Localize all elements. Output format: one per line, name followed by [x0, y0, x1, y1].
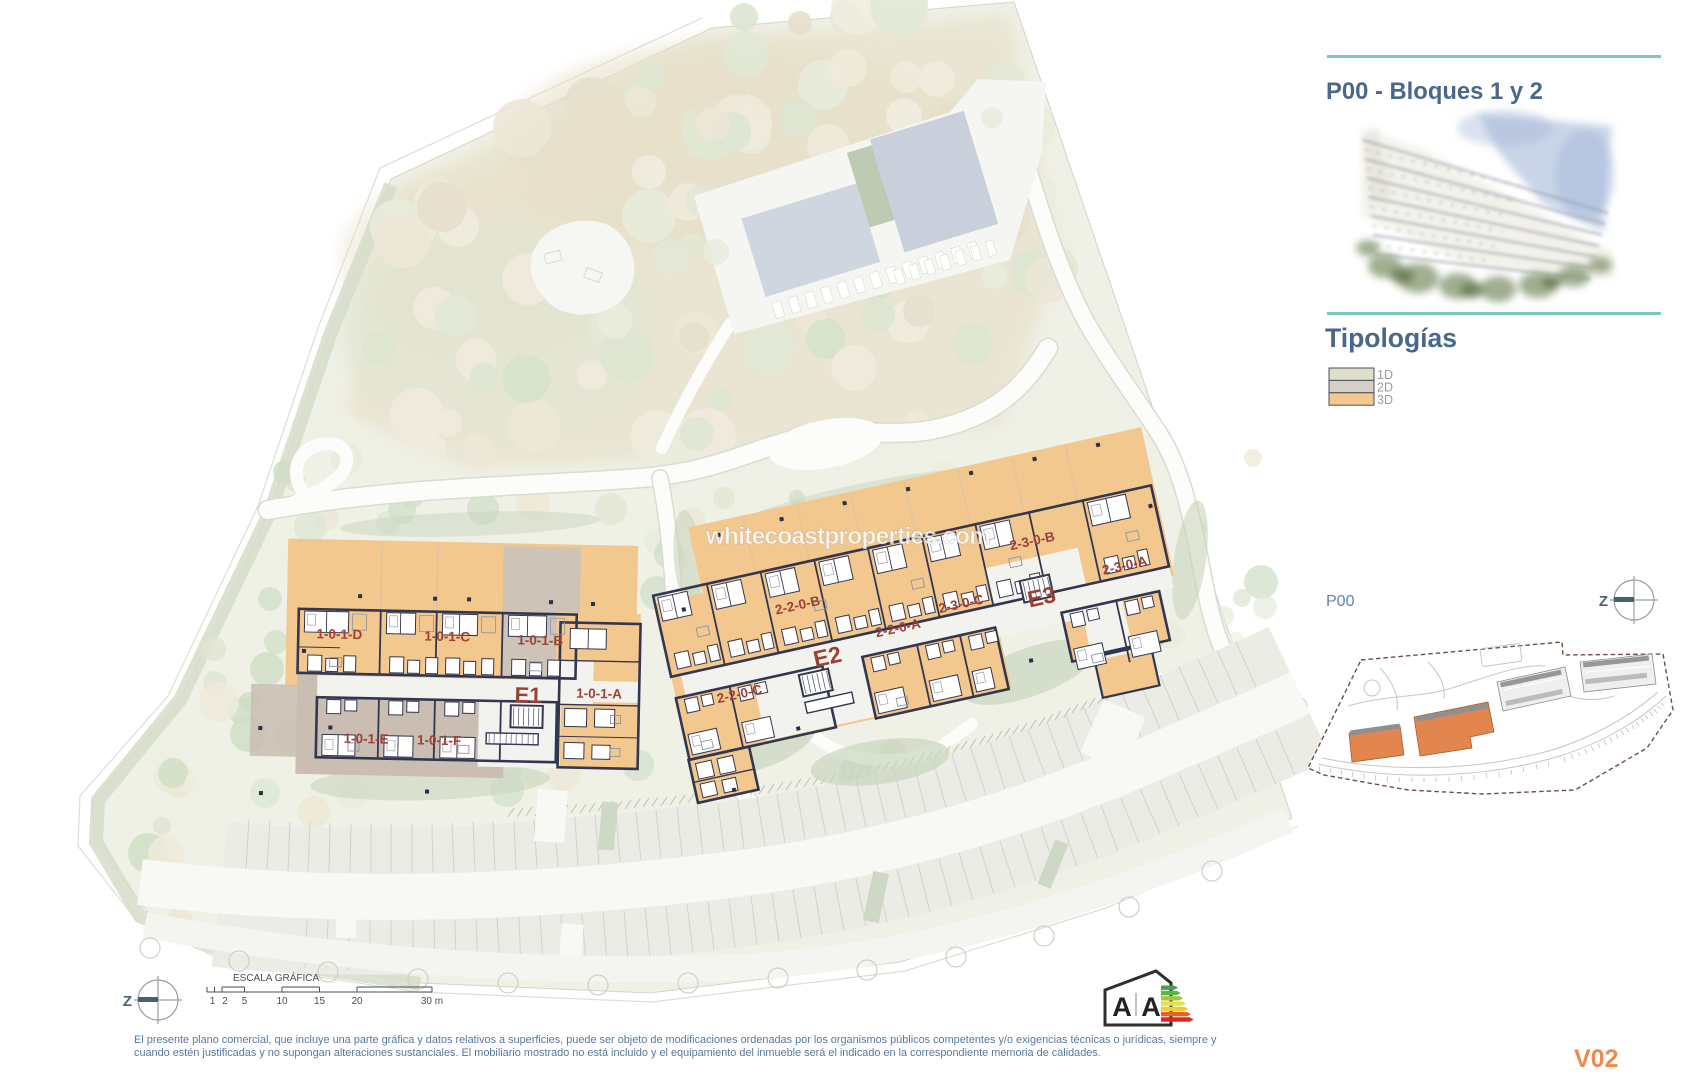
- svg-text:15: 15: [314, 996, 326, 1007]
- svg-text:ESCALA GRÁFICA: ESCALA GRÁFICA: [233, 971, 319, 984]
- svg-text:P00: P00: [1326, 593, 1355, 610]
- svg-text:1-0-1-B: 1-0-1-B: [517, 632, 563, 648]
- svg-text:5: 5: [242, 996, 248, 1007]
- svg-text:P00 - Bloques 1 y 2: P00 - Bloques 1 y 2: [1326, 78, 1543, 105]
- svg-text:30 m: 30 m: [421, 996, 443, 1007]
- svg-text:20: 20: [351, 996, 363, 1007]
- svg-text:1-0-1-E: 1-0-1-E: [343, 731, 388, 747]
- svg-text:1-0-1-F: 1-0-1-F: [417, 732, 462, 748]
- svg-text:Z: Z: [123, 993, 132, 1010]
- svg-text:A: A: [1141, 992, 1161, 1022]
- svg-text:1-0-1-A: 1-0-1-A: [576, 686, 622, 702]
- svg-text:cuando estén justificadas y no: cuando estén justificadas y no supongan …: [134, 1047, 1101, 1059]
- svg-text:1-0-1-D: 1-0-1-D: [316, 626, 362, 642]
- svg-text:Z: Z: [1599, 593, 1608, 610]
- svg-text:1: 1: [210, 996, 216, 1007]
- svg-text:A: A: [1112, 992, 1132, 1022]
- svg-text:1-0-1-C: 1-0-1-C: [424, 628, 470, 644]
- svg-text:V02: V02: [1574, 1045, 1618, 1073]
- svg-text:whitecoastproperties.com: whitecoastproperties.com: [705, 523, 990, 550]
- svg-text:2: 2: [222, 996, 228, 1007]
- svg-text:3D: 3D: [1377, 393, 1393, 407]
- svg-text:El presente plano comercial, q: El presente plano comercial, que incluye…: [134, 1034, 1217, 1046]
- svg-text:Tipologías: Tipologías: [1325, 323, 1457, 353]
- svg-text:E1: E1: [514, 682, 541, 708]
- svg-text:10: 10: [276, 996, 288, 1007]
